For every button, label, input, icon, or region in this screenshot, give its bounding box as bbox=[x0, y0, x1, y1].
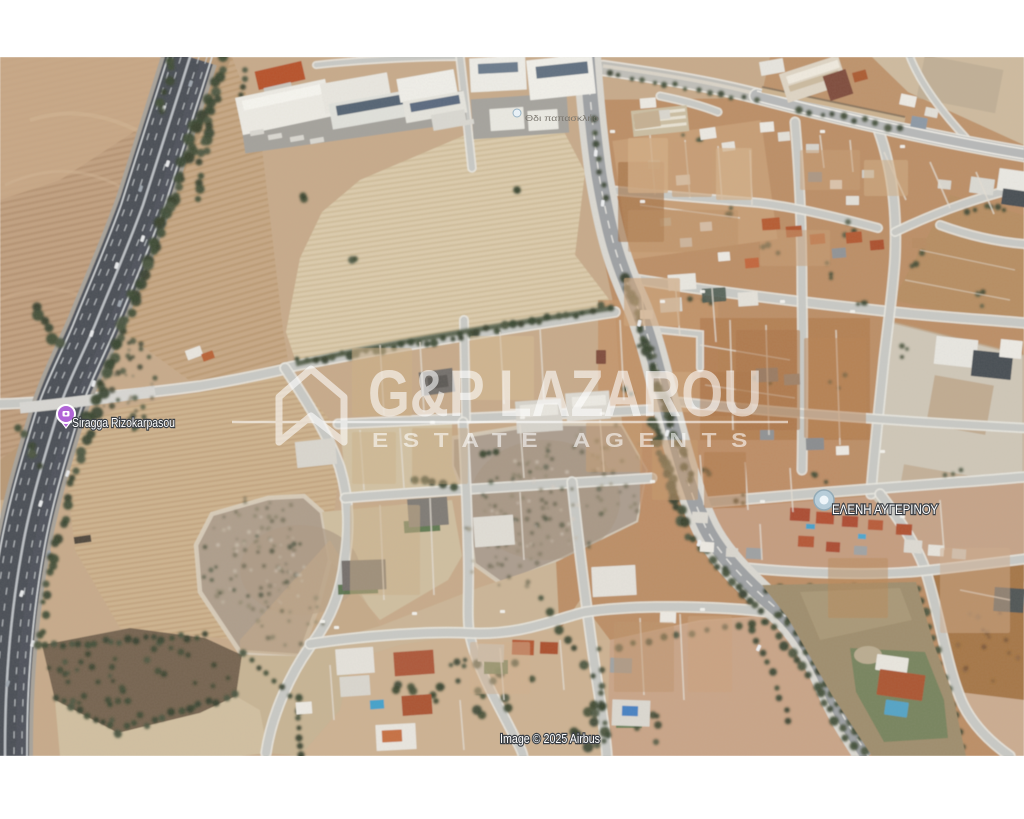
svg-text:Θδι παπασκλήο: Θδι παπασκλήο bbox=[525, 113, 599, 123]
svg-text:Image © 2025 Airbus: Image © 2025 Airbus bbox=[500, 732, 600, 746]
svg-text:Siragga Rizokarpasou: Siragga Rizokarpasou bbox=[72, 415, 175, 430]
svg-text:G&P LAZAROU: G&P LAZAROU bbox=[368, 356, 762, 430]
svg-text:ESTATE AGENTS: ESTATE AGENTS bbox=[372, 430, 762, 452]
svg-text:ΕΛΕΝΗ ΑΥΓΕΡΙΝΟΥ: ΕΛΕΝΗ ΑΥΓΕΡΙΝΟΥ bbox=[832, 502, 938, 517]
